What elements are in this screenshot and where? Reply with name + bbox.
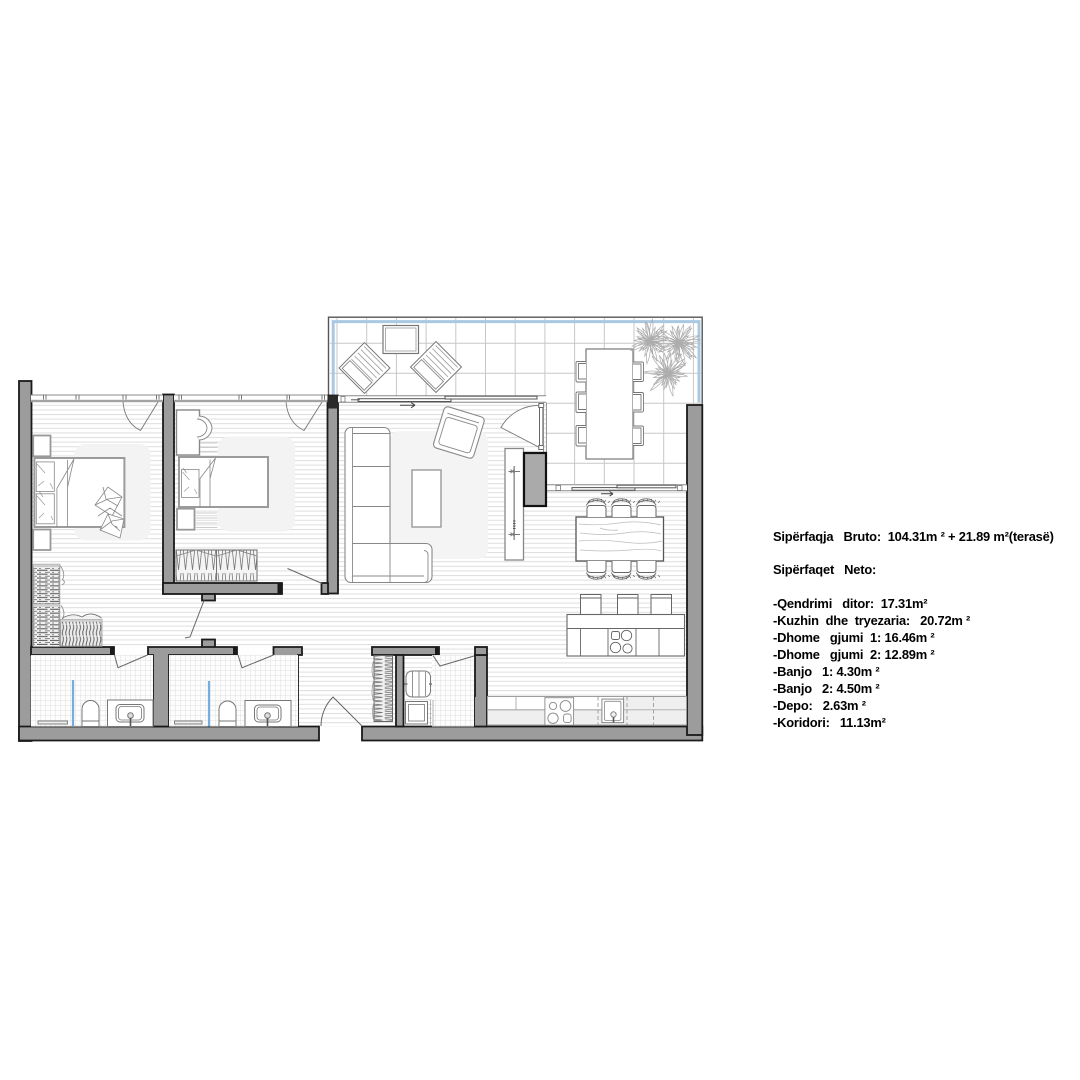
svg-text:Sipërfaqja Bruto: 104.31m ²: Sipërfaqja Bruto: 104.31m ² + 21.89 m²(t…: [773, 529, 1054, 544]
svg-text:-Dhome gjumi 2: 12.89m ²: -Dhome gjumi 2: 12.89m ²: [773, 647, 935, 662]
svg-text:-Banjo 2: 4.50m ²: -Banjo 2: 4.50m ²: [773, 681, 880, 696]
svg-text:-Qendrimi ditor: 17.31m²: -Qendrimi ditor: 17.31m²: [773, 596, 928, 611]
svg-text:-Dhome gjumi 1: 16.46m ²: -Dhome gjumi 1: 16.46m ²: [773, 630, 935, 645]
svg-text:-Depo: 2.63m ²: -Depo: 2.63m ²: [773, 698, 867, 713]
svg-text:Sipërfaqet Neto:: Sipërfaqet Neto:: [773, 562, 876, 577]
svg-text:-Koridori: 11.13m²: -Koridori: 11.13m²: [773, 715, 887, 730]
svg-text:-Banjo 1: 4.30m ²: -Banjo 1: 4.30m ²: [773, 664, 880, 679]
svg-text:-Kuzhin dhe tryezaria: 20.: -Kuzhin dhe tryezaria: 20.72m ²: [773, 613, 971, 628]
